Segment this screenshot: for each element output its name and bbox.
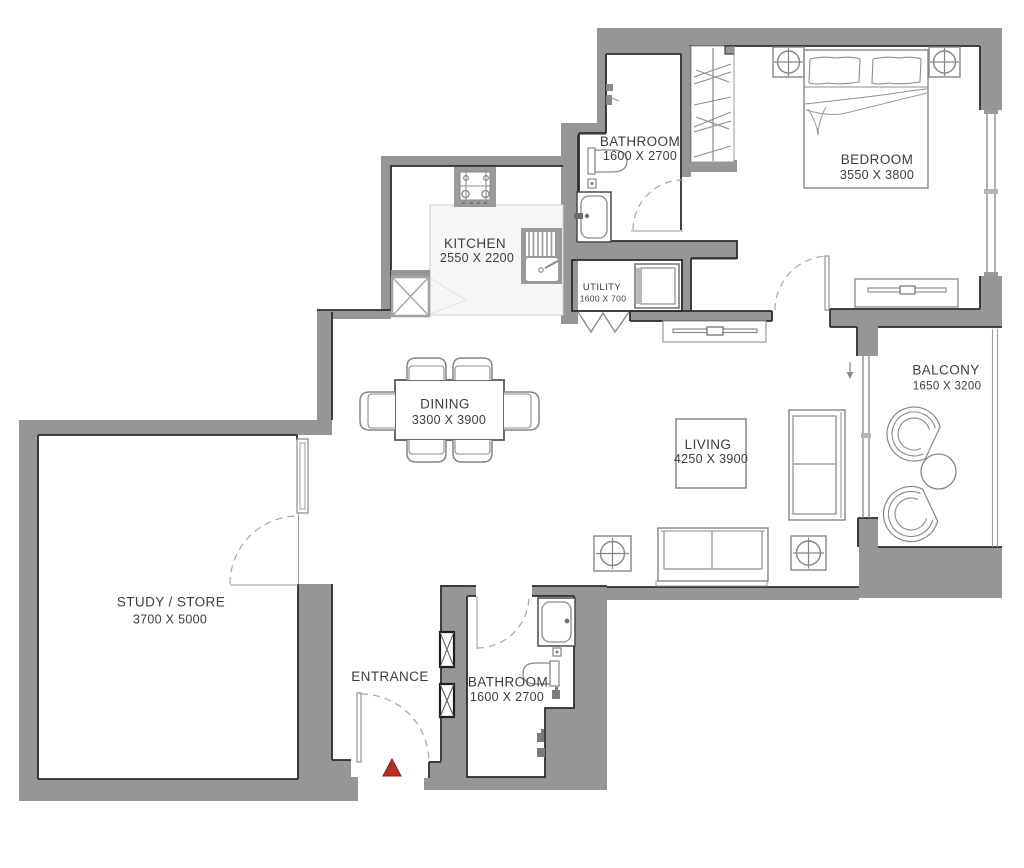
- svg-text:KITCHEN: KITCHEN: [444, 236, 506, 251]
- svg-text:1600 X 2700: 1600 X 2700: [470, 690, 544, 704]
- svg-text:BALCONY: BALCONY: [912, 363, 979, 378]
- svg-text:3550 X 3800: 3550 X 3800: [840, 168, 914, 182]
- svg-text:1600 X 2700: 1600 X 2700: [603, 149, 677, 163]
- svg-text:4250 X 3900: 4250 X 3900: [674, 452, 748, 466]
- svg-text:STUDY / STORE: STUDY / STORE: [117, 595, 225, 610]
- svg-text:3300 X 3900: 3300 X 3900: [412, 413, 486, 427]
- svg-text:BATHROOM: BATHROOM: [468, 675, 548, 690]
- svg-text:1650 X 3200: 1650 X 3200: [913, 381, 982, 393]
- svg-text:ENTRANCE: ENTRANCE: [351, 669, 428, 684]
- svg-text:UTILITY: UTILITY: [583, 282, 621, 293]
- svg-text:3700 X 5000: 3700 X 5000: [133, 613, 207, 627]
- svg-text:BEDROOM: BEDROOM: [841, 152, 914, 167]
- svg-text:LIVING: LIVING: [685, 437, 732, 452]
- svg-text:2550 X 2200: 2550 X 2200: [440, 251, 514, 265]
- svg-text:BATHROOM: BATHROOM: [600, 134, 680, 149]
- svg-text:DINING: DINING: [420, 397, 470, 412]
- svg-text:1600 X 700: 1600 X 700: [580, 294, 626, 304]
